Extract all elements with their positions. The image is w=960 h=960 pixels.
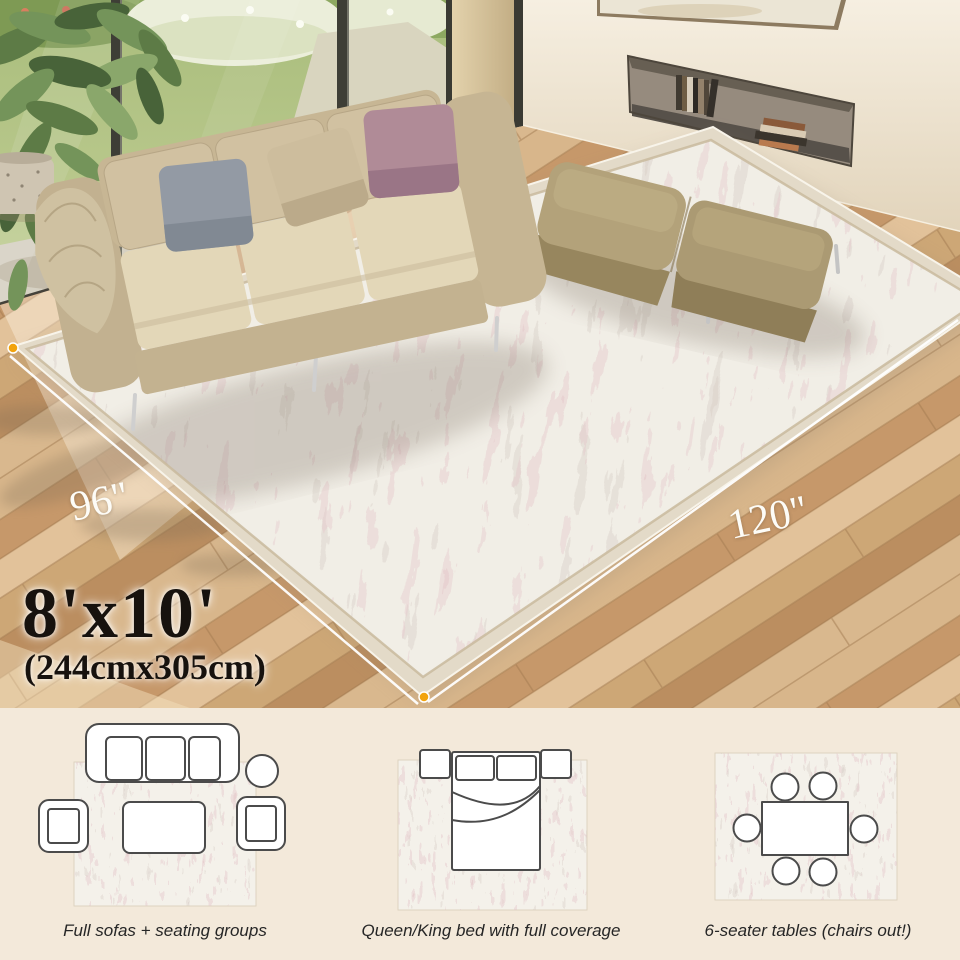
pillow-mauve <box>363 103 460 199</box>
diagram-pillow <box>456 756 494 780</box>
diagram-chair <box>734 815 761 842</box>
rug-size-metric-label: (244cmx305cm) <box>24 646 266 688</box>
diagram-coffee-table <box>123 802 205 853</box>
dining-layout-diagram <box>715 753 897 900</box>
diagram-chair <box>851 816 878 843</box>
corner-marker-dot <box>419 692 429 702</box>
diagram-chair <box>773 858 800 885</box>
diagram-nightstand-left <box>420 750 450 778</box>
diagram-dining-table <box>762 802 848 855</box>
rug-product-image: 96" 120" 8'x10' (244cmx305cm) <box>0 0 960 960</box>
corner-marker-dot <box>8 343 18 353</box>
diagram-side-table <box>246 755 278 787</box>
diagram-chair <box>772 774 799 801</box>
window-frame-right <box>514 0 523 128</box>
diagram-chair <box>810 773 837 800</box>
bed-layout-caption: Queen/King bed with full coverage <box>326 921 656 941</box>
dining-layout-caption: 6-seater tables (chairs out!) <box>648 921 960 941</box>
bed-layout-diagram <box>398 750 587 910</box>
diagram-chair <box>810 859 837 886</box>
sofa-layout-caption: Full sofas + seating groups <box>0 921 330 941</box>
diagram-nightstand-right <box>541 750 571 778</box>
sofa-layout-diagram <box>39 724 285 906</box>
diagram-pillow <box>497 756 536 780</box>
pillow-gray <box>158 158 255 253</box>
rug-size-imperial-label: 8'x10' <box>22 572 218 655</box>
